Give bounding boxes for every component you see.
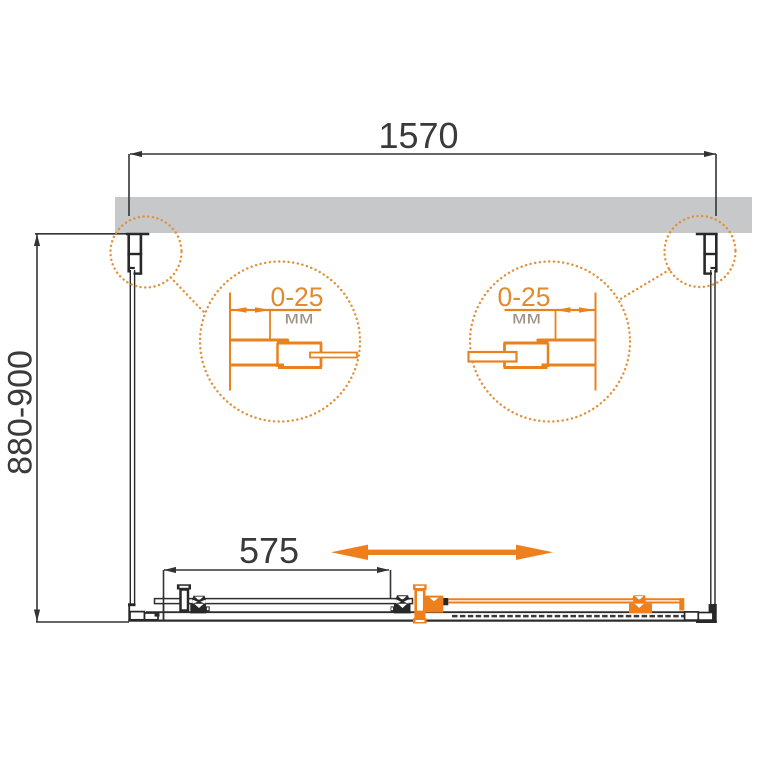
svg-text:1570: 1570 [378, 115, 458, 156]
svg-text:880-900: 880-900 [2, 350, 40, 475]
svg-text:575: 575 [239, 530, 299, 571]
